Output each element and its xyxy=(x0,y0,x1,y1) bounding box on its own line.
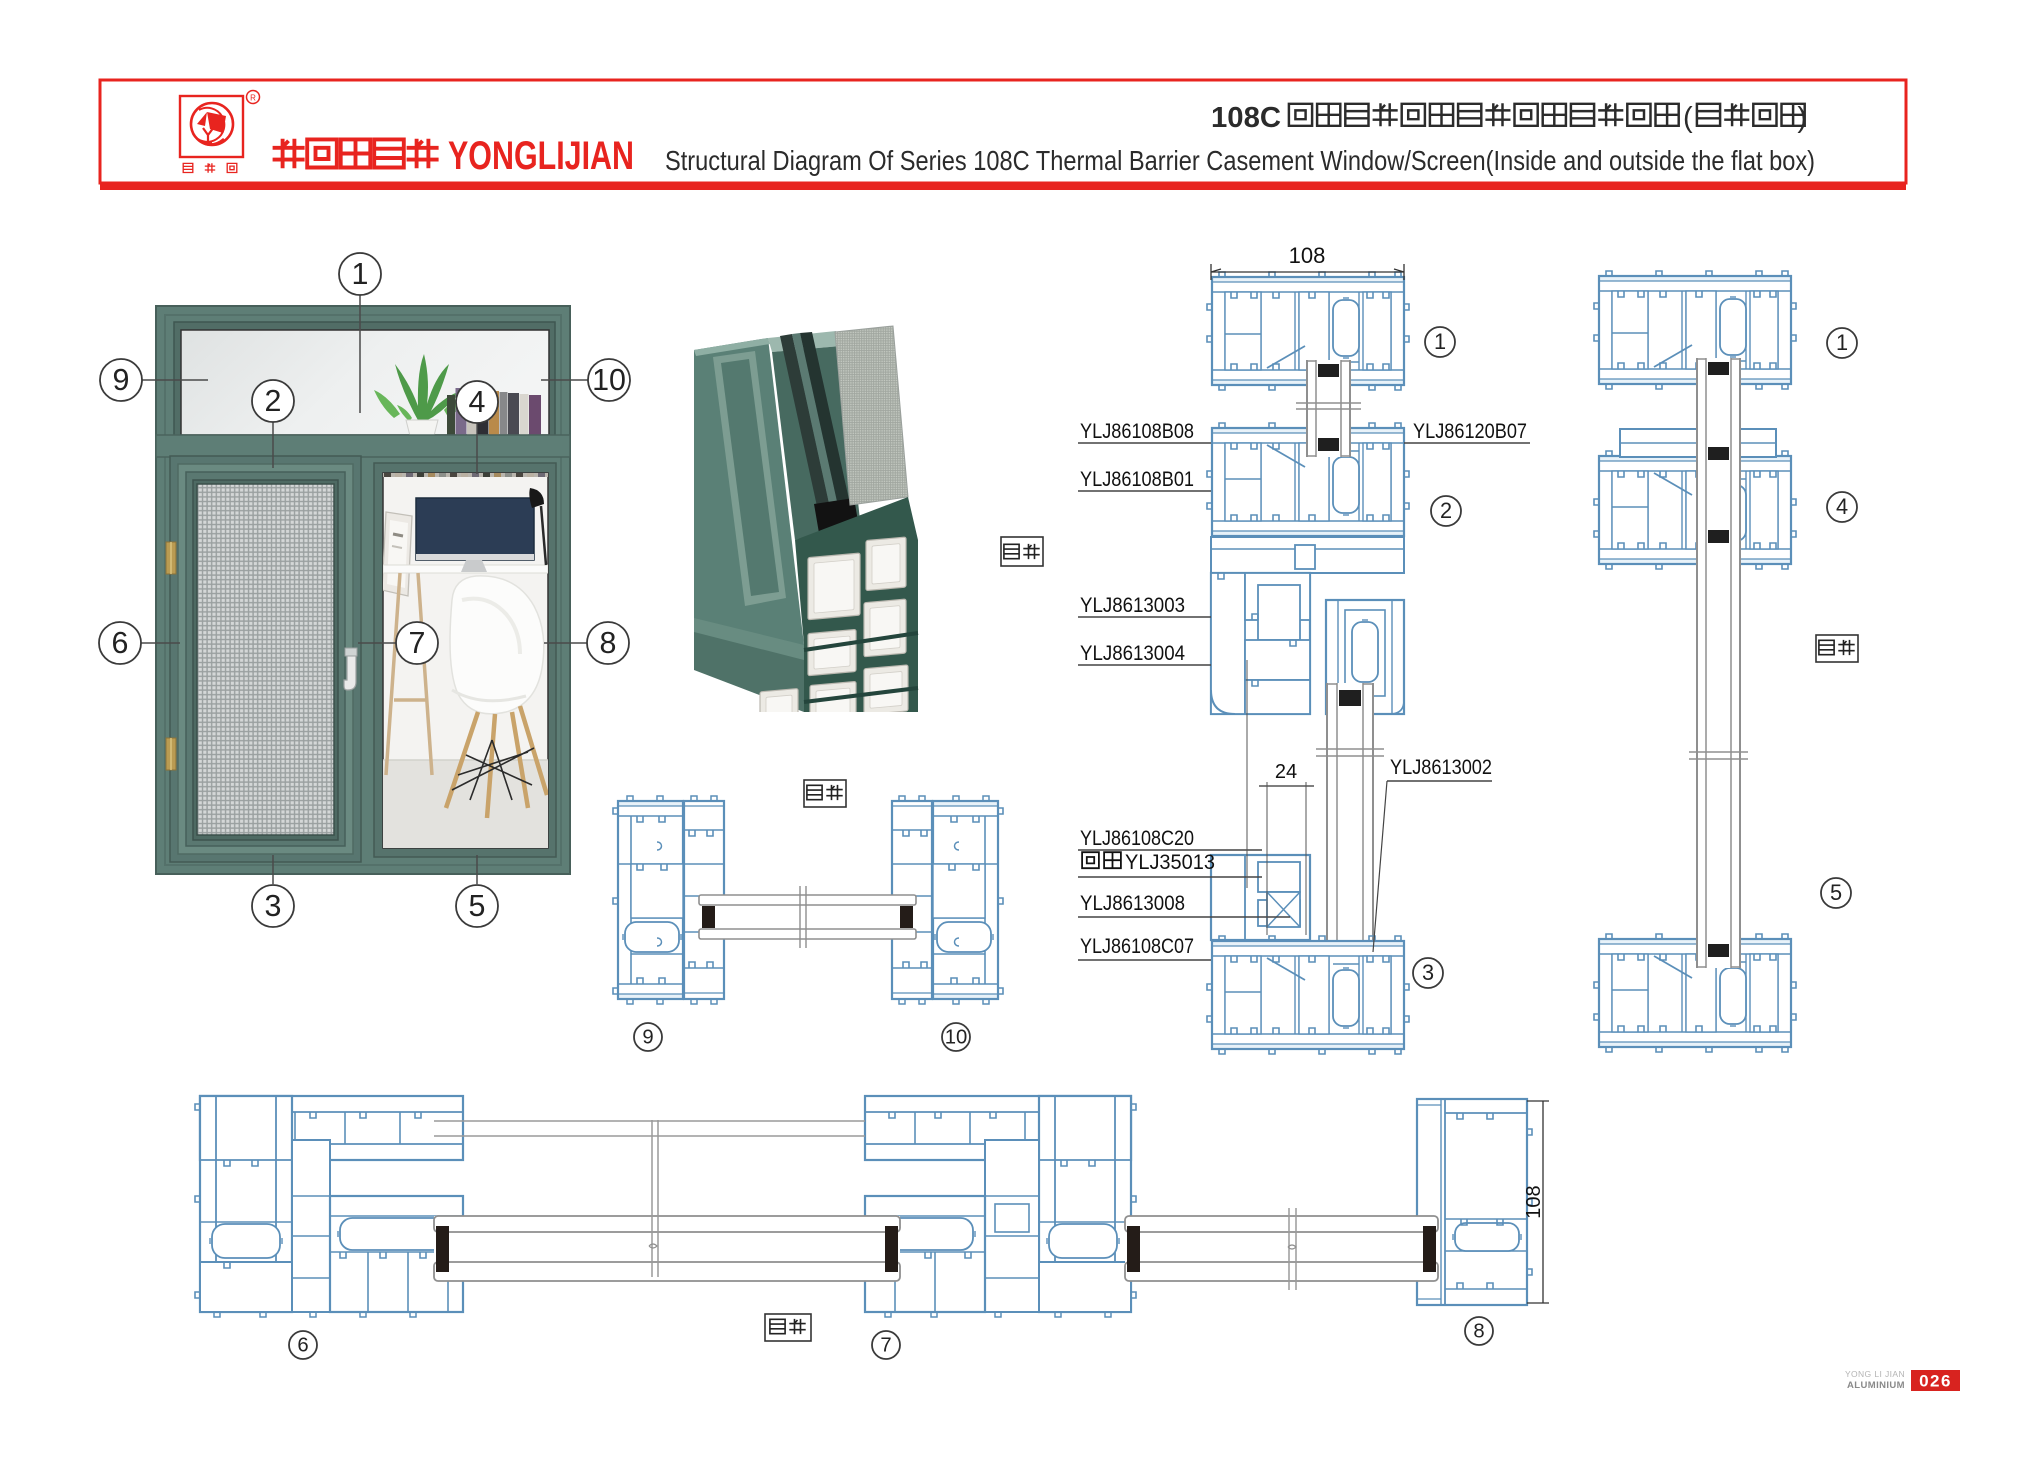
svg-text:YLJ8613003: YLJ8613003 xyxy=(1080,594,1185,617)
svg-text:Structural Diagram Of Series 1: Structural Diagram Of Series 108C Therma… xyxy=(665,145,1815,176)
svg-text:10: 10 xyxy=(945,1027,968,1049)
svg-text:108C: 108C xyxy=(1211,102,1281,134)
svg-text:): ) xyxy=(1797,102,1807,134)
svg-text:3: 3 xyxy=(1422,960,1434,985)
svg-text:7: 7 xyxy=(880,1335,891,1357)
svg-text:10: 10 xyxy=(592,363,626,397)
svg-text:YLJ86108C07: YLJ86108C07 xyxy=(1080,935,1194,958)
svg-text:YLJ86120B07: YLJ86120B07 xyxy=(1413,420,1527,443)
svg-text:YLJ35013: YLJ35013 xyxy=(1125,851,1215,874)
svg-text:3: 3 xyxy=(265,889,282,923)
svg-text:4: 4 xyxy=(469,385,486,419)
svg-text:9: 9 xyxy=(113,363,130,397)
svg-text:1: 1 xyxy=(1836,330,1848,355)
svg-text:4: 4 xyxy=(1836,494,1848,519)
svg-text:24: 24 xyxy=(1275,761,1297,783)
svg-text:2: 2 xyxy=(265,384,282,418)
svg-text:YLJ86108B08: YLJ86108B08 xyxy=(1080,420,1194,443)
svg-text:YLJ8613008: YLJ8613008 xyxy=(1080,892,1185,915)
svg-text:8: 8 xyxy=(600,626,617,660)
svg-text:1: 1 xyxy=(1434,329,1446,354)
svg-text:R: R xyxy=(250,94,256,103)
svg-text:YLJ8613004: YLJ8613004 xyxy=(1080,642,1185,665)
svg-text:ALUMINIUM: ALUMINIUM xyxy=(1847,1380,1905,1391)
svg-text:6: 6 xyxy=(112,626,129,660)
svg-text:5: 5 xyxy=(469,889,486,923)
svg-text:108: 108 xyxy=(1289,243,1326,268)
svg-text:YLJ8613002: YLJ8613002 xyxy=(1390,756,1492,779)
svg-text:YONGLIJIAN: YONGLIJIAN xyxy=(448,134,634,178)
svg-text:108: 108 xyxy=(1523,1185,1545,1218)
svg-text:7: 7 xyxy=(409,626,426,660)
svg-text:6: 6 xyxy=(297,1335,308,1357)
svg-text:2: 2 xyxy=(1440,498,1452,523)
svg-text:1: 1 xyxy=(352,257,369,291)
svg-text:8: 8 xyxy=(1473,1321,1484,1343)
svg-text:(: ( xyxy=(1683,102,1693,134)
svg-text:9: 9 xyxy=(642,1027,653,1049)
svg-text:026: 026 xyxy=(1919,1372,1952,1391)
svg-text:YLJ86108C20: YLJ86108C20 xyxy=(1080,827,1194,850)
svg-text:YLJ86108B01: YLJ86108B01 xyxy=(1080,468,1194,491)
svg-text:5: 5 xyxy=(1830,880,1842,905)
svg-text:YONG LI JIAN: YONG LI JIAN xyxy=(1845,1369,1905,1379)
